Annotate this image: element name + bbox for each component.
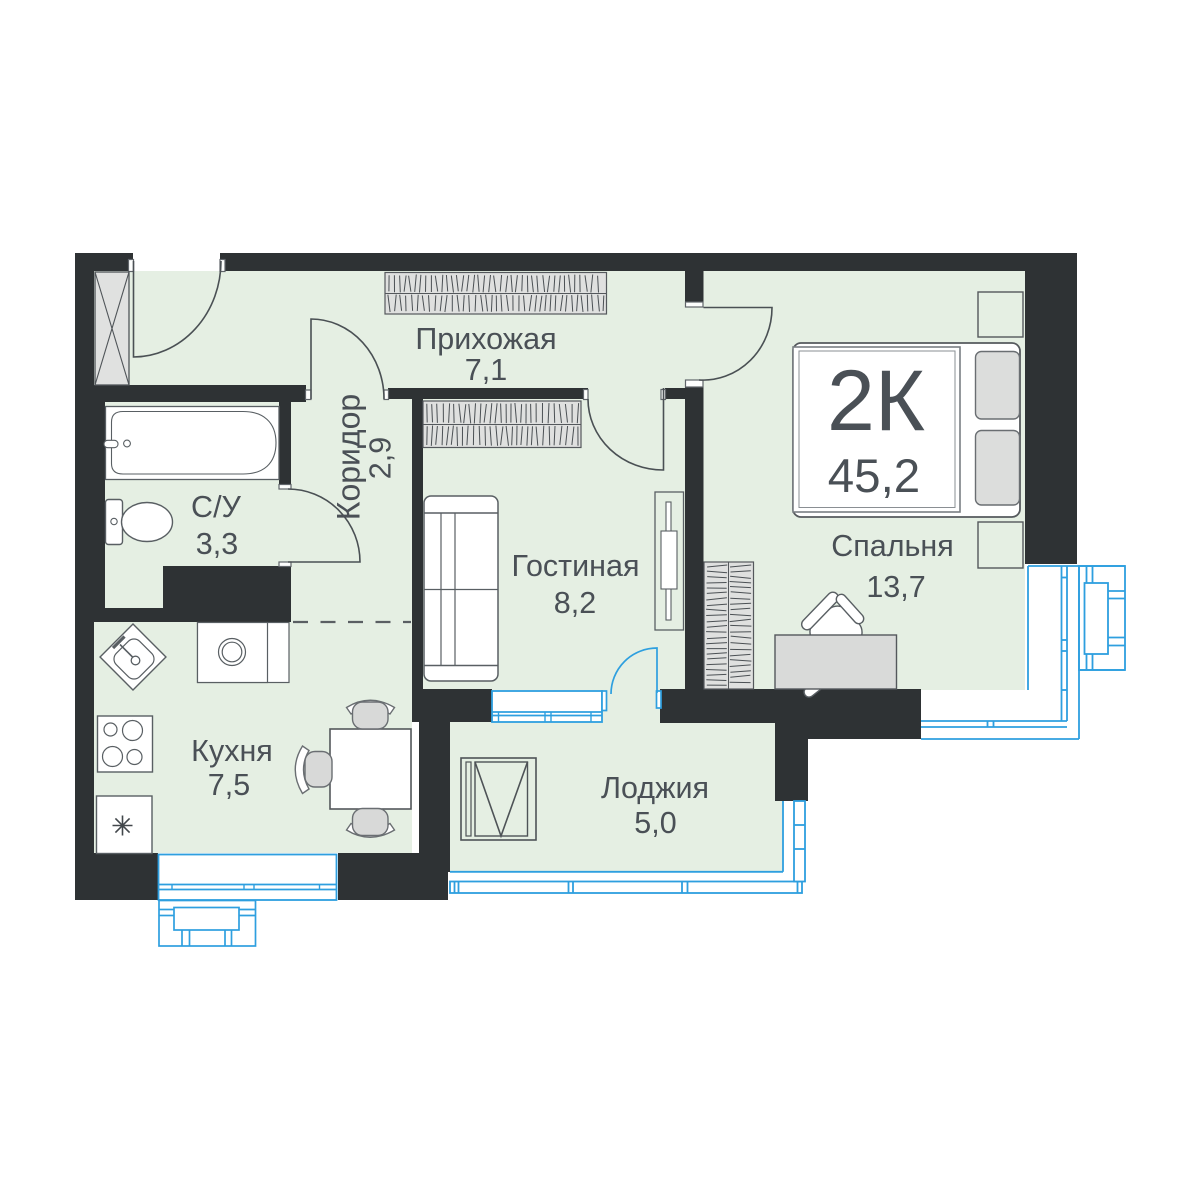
svg-text:Спальня: Спальня [831, 529, 954, 563]
svg-text:Лоджия: Лоджия [601, 771, 709, 805]
svg-text:Кухня: Кухня [191, 734, 273, 768]
svg-text:С/У: С/У [191, 490, 242, 524]
svg-text:2К: 2К [827, 353, 925, 449]
svg-text:Гостиная: Гостиная [511, 549, 639, 583]
svg-text:8,2: 8,2 [554, 586, 596, 620]
svg-text:Коридор: Коридор [331, 394, 367, 520]
svg-text:3,3: 3,3 [196, 527, 238, 561]
svg-text:2,9: 2,9 [364, 437, 398, 479]
svg-text:Прихожая: Прихожая [415, 322, 556, 356]
svg-text:7,1: 7,1 [465, 353, 507, 387]
svg-text:5,0: 5,0 [634, 806, 676, 840]
svg-text:45,2: 45,2 [828, 450, 920, 503]
svg-text:13,7: 13,7 [866, 570, 925, 604]
svg-text:7,5: 7,5 [208, 768, 250, 802]
